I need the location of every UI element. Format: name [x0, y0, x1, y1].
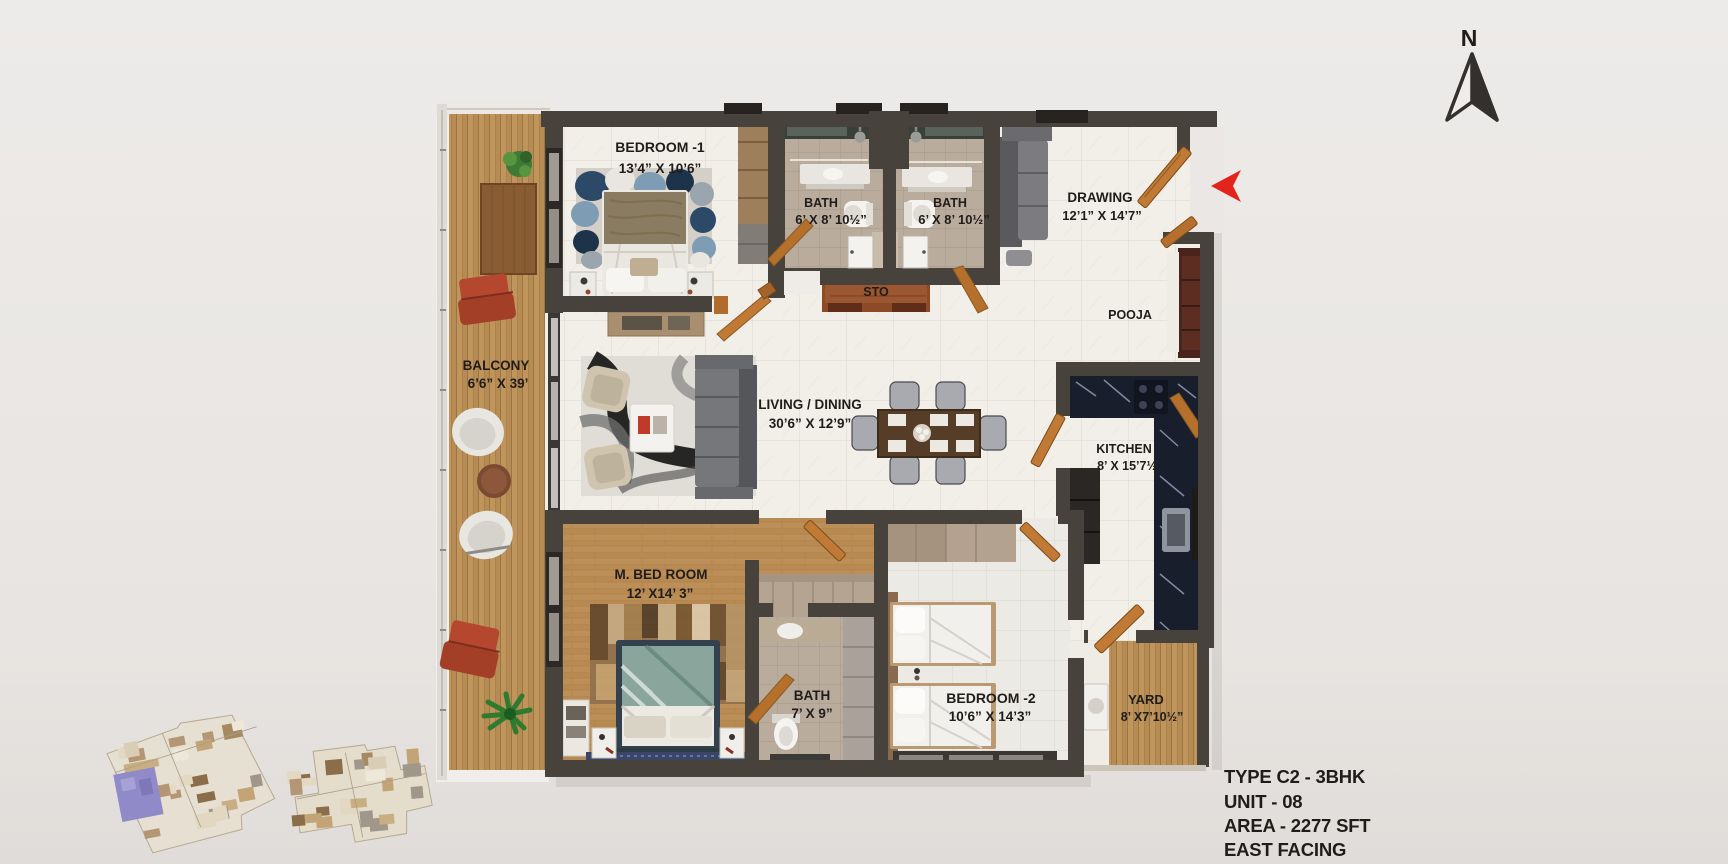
- svg-text:8’ X 15’7½: 8’ X 15’7½: [1097, 459, 1157, 473]
- svg-text:DRAWING: DRAWING: [1067, 190, 1132, 205]
- svg-text:N: N: [1461, 25, 1478, 51]
- svg-text:BATH: BATH: [933, 196, 967, 210]
- svg-text:AREA - 2277 SFT: AREA - 2277 SFT: [1224, 815, 1371, 836]
- svg-text:POOJA: POOJA: [1108, 308, 1152, 322]
- svg-text:30’6” X 12’9”: 30’6” X 12’9”: [769, 416, 852, 431]
- svg-text:6’ X 8’ 10½”: 6’ X 8’ 10½”: [918, 212, 990, 227]
- svg-text:BATH: BATH: [804, 196, 838, 210]
- svg-text:BALCONY: BALCONY: [463, 358, 530, 373]
- svg-text:UNIT - 08: UNIT - 08: [1224, 791, 1302, 812]
- svg-text:6’ X 8’ 10½”: 6’ X 8’ 10½”: [795, 212, 867, 227]
- svg-text:YARD: YARD: [1128, 692, 1164, 707]
- svg-text:M. BED ROOM: M. BED ROOM: [615, 567, 708, 582]
- svg-text:10’6” X 14’3”: 10’6” X 14’3”: [949, 709, 1032, 724]
- svg-text:TYPE C2 - 3BHK: TYPE C2 - 3BHK: [1224, 766, 1366, 787]
- svg-text:6’6” X 39’: 6’6” X 39’: [468, 376, 529, 391]
- svg-text:BEDROOM -1: BEDROOM -1: [615, 139, 705, 155]
- svg-text:12’1” X 14’7”: 12’1” X 14’7”: [1062, 208, 1142, 223]
- svg-text:13’4” X 10’6”: 13’4” X 10’6”: [619, 161, 702, 176]
- svg-text:BATH: BATH: [794, 688, 831, 703]
- svg-text:STO: STO: [863, 285, 889, 299]
- svg-text:BEDROOM -2: BEDROOM -2: [946, 690, 1036, 706]
- svg-text:7’ X 9”: 7’ X 9”: [791, 706, 832, 721]
- svg-text:EAST FACING: EAST FACING: [1224, 839, 1346, 860]
- svg-text:12’ X14’ 3”: 12’ X14’ 3”: [627, 586, 694, 601]
- svg-text:KITCHEN: KITCHEN: [1096, 442, 1152, 456]
- svg-text:8’ X7’10½”: 8’ X7’10½”: [1121, 710, 1184, 724]
- svg-text:LIVING / DINING: LIVING / DINING: [758, 397, 862, 412]
